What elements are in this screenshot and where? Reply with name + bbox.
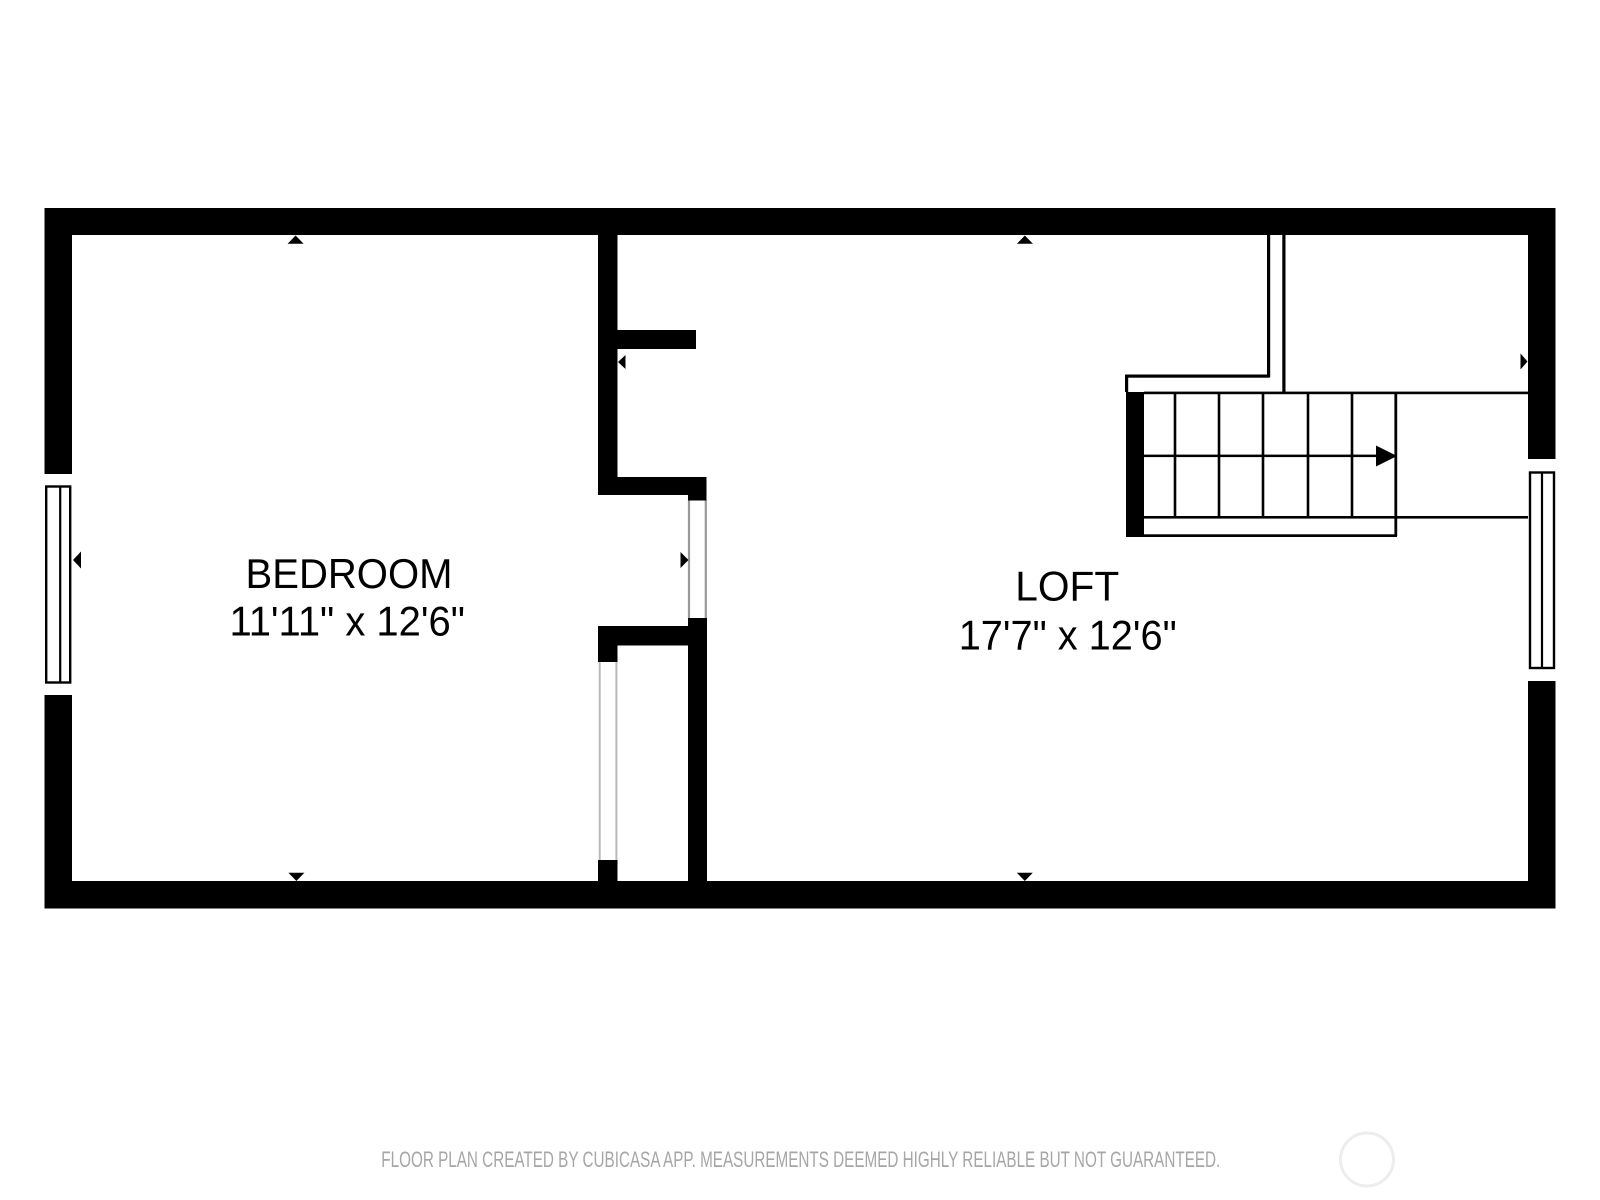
svg-text:LOFT: LOFT [1015,562,1119,609]
svg-text:17'7" x 12'6": 17'7" x 12'6" [959,611,1177,658]
svg-text:FLOOR PLAN CREATED BY CUBICASA: FLOOR PLAN CREATED BY CUBICASA APP. MEAS… [381,1147,1220,1172]
svg-text:BEDROOM: BEDROOM [246,550,453,597]
svg-text:11'11" x 12'6": 11'11" x 12'6" [229,597,465,644]
